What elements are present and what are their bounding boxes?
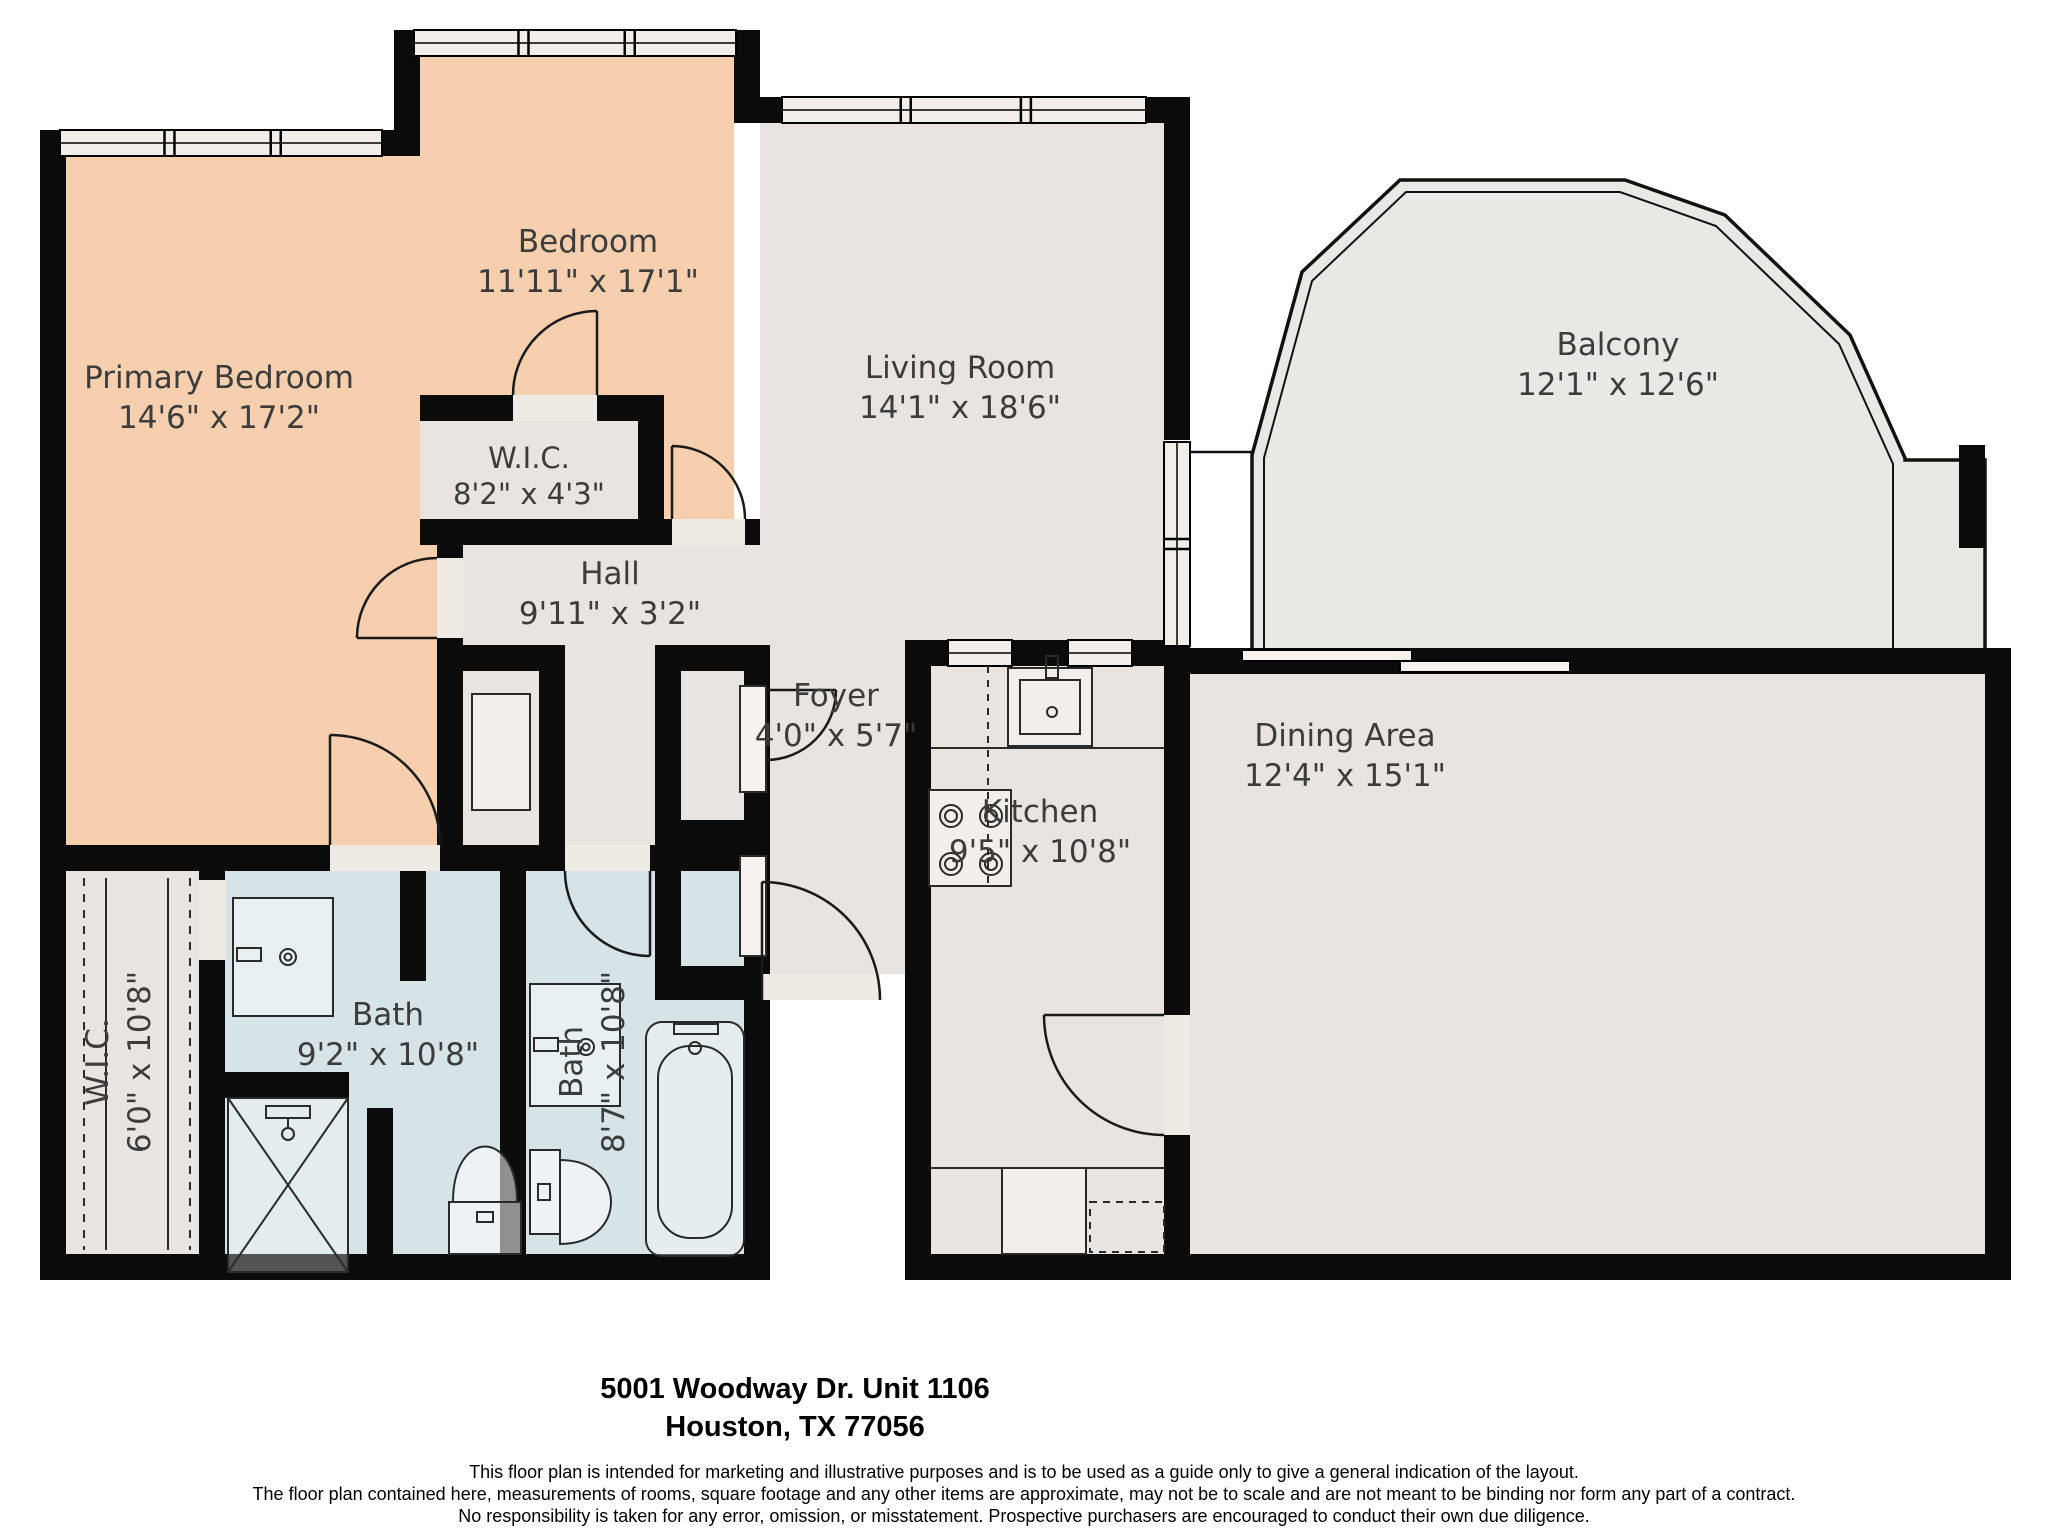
window-primary-bedroom [60,130,382,156]
vanity-icon [233,898,333,1016]
room-dimensions: 8'7" x 10'8" [596,971,632,1153]
room-name: Bedroom [518,224,658,260]
room-dimensions: 4'0" x 5'7" [755,718,918,754]
room-name: Kitchen [982,794,1099,830]
cabinet-icon [1002,1168,1086,1254]
footer-text: 5001 Woodway Dr. Unit 1106Houston, TX 77… [253,1373,1796,1526]
room-dimensions: 9'2" x 10'8" [297,1037,479,1073]
room-foyer-closet-1 [681,671,744,820]
wall-segment [40,130,66,1280]
room-name: W.I.C. [488,441,570,475]
wall-segment [1164,97,1190,440]
room-dimensions: 11'11" x 17'1" [477,264,699,300]
room-name: Hall [580,556,640,592]
room-dimensions: 12'1" x 12'6" [1517,367,1719,403]
room-name: Bath [554,1026,590,1098]
window-living-balcony [1164,442,1190,646]
footer-address-line1: 5001 Woodway Dr. Unit 1106 [600,1373,990,1405]
footer-disclaimer-line: The floor plan contained here, measureme… [253,1484,1796,1504]
floor-plan-svg: Primary Bedroom14'6" x 17'2"Bedroom11'11… [0,0,2048,1536]
room-dimensions: 6'0" x 10'8" [122,971,158,1153]
wall-segment [1164,1135,1190,1280]
toilet-icon [530,1150,560,1234]
wall-segment [744,974,770,1280]
footer-disclaimer-line: No responsibility is taken for any error… [458,1506,1590,1526]
room-name: Primary Bedroom [84,360,354,396]
opening-entry-door [762,974,880,1000]
room-name: Living Room [865,350,1055,386]
opening-corridor-bath [565,845,650,871]
opening-primary-bath [330,845,440,871]
opening-wic-bath [199,880,225,960]
room-name: W.I.C. [80,1018,116,1105]
wall-segment [400,871,426,981]
wall-segment [1164,640,1190,1015]
opening-bedroom-wic [513,395,597,421]
opening-bedroom-hall [672,519,745,545]
room-kitchen [931,666,1164,1254]
room-dimensions: 14'1" x 18'6" [859,390,1061,426]
room-dimensions: 8'2" x 4'3" [453,477,605,511]
window-kitchen-2 [1068,640,1132,666]
room-name: Foyer [793,678,879,714]
wall-segment [638,395,664,545]
linen-shelf-icon [472,694,530,810]
wall-segment [40,1254,770,1280]
room-balcony [1252,180,1985,648]
floor-plan-page: Primary Bedroom14'6" x 17'2"Bedroom11'11… [0,0,2048,1536]
room-dimensions: 9'5" x 10'8" [949,834,1131,870]
room-name: Balcony [1557,327,1680,363]
opening-hall-primary [437,558,463,638]
toilet-icon [449,1202,521,1254]
wall-segment [655,820,770,846]
window-kitchen-1 [948,640,1012,666]
window-living-room [782,97,1146,123]
room-dimensions: 12'4" x 15'1" [1244,758,1446,794]
footer-disclaimer-line: This floor plan is intended for marketin… [469,1462,1579,1482]
room-dimensions: 14'6" x 17'2" [118,400,320,436]
room-corridor [565,645,655,845]
window-bedroom [414,30,736,56]
wall-segment [905,1254,2011,1280]
wall-segment [539,645,565,845]
wall-segment [199,1072,349,1098]
room-dimensions: 9'11" x 3'2" [519,596,701,632]
wall-segment [367,1108,393,1254]
room-primary-bedroom [66,156,437,845]
wall-segment [1985,648,2011,1280]
opening-kitchen-dining [1164,1015,1190,1135]
wall-segment [655,966,770,1000]
footer-address-line2: Houston, TX 77056 [665,1411,924,1443]
room-name: Dining Area [1254,718,1435,754]
room-name: Bath [352,997,424,1033]
wall-segment [1959,445,1985,548]
